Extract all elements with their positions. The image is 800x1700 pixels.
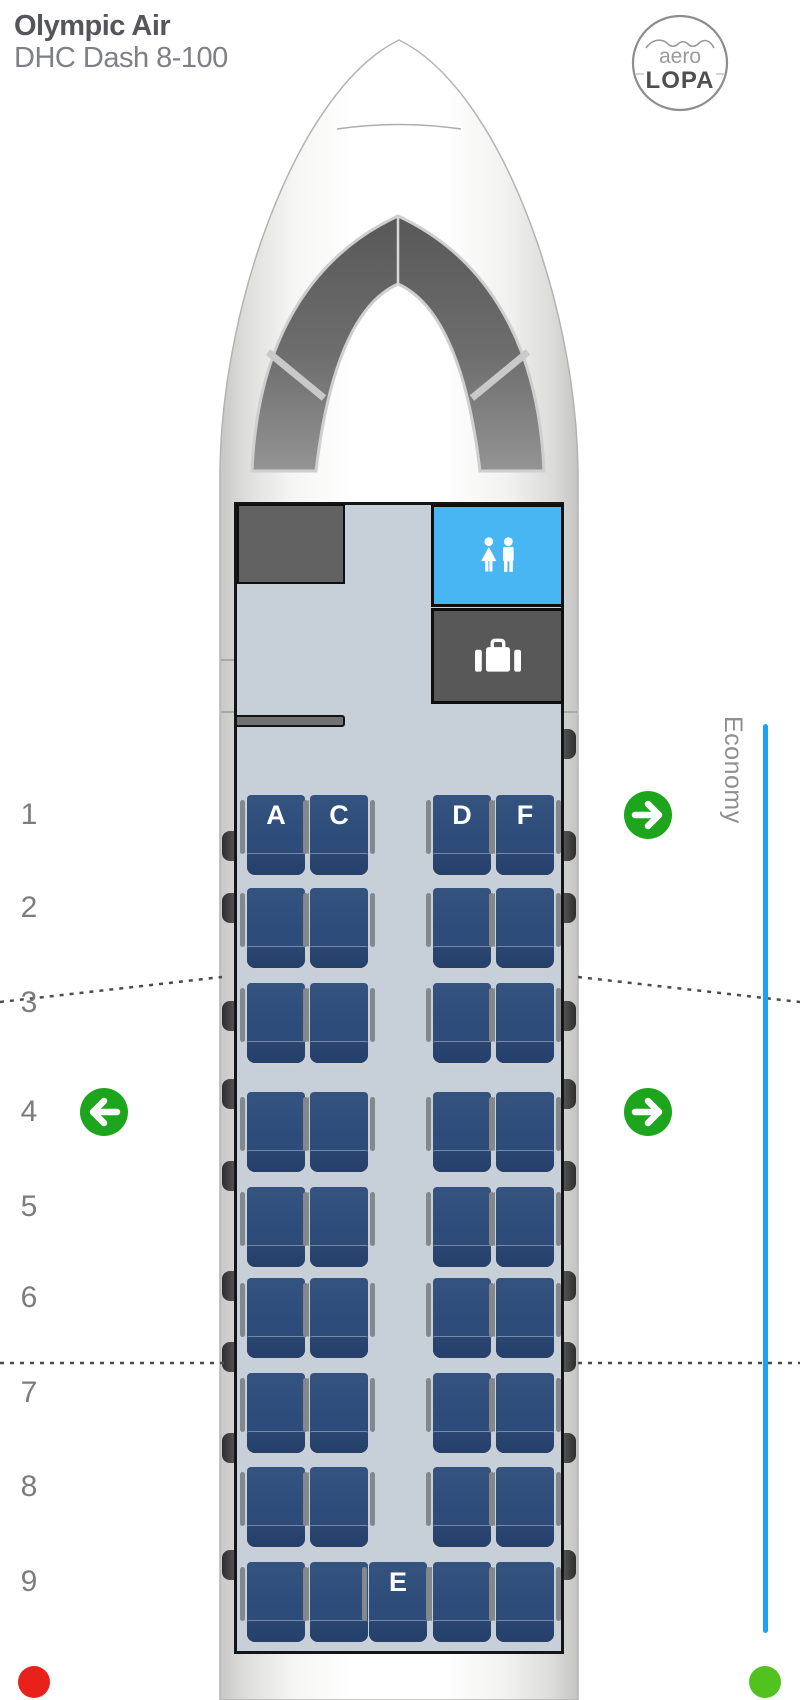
row-number-4: 4 (9, 1095, 49, 1129)
emergency-exit-row4-right (624, 1088, 672, 1136)
seat-cushion (496, 1041, 554, 1063)
row-number-8: 8 (9, 1470, 49, 1504)
seat-cushion (433, 946, 491, 968)
seat-5F[interactable] (496, 1187, 554, 1267)
seat-8F[interactable] (496, 1467, 554, 1547)
seat-5C[interactable] (310, 1187, 368, 1267)
seat-cushion (310, 1525, 368, 1547)
seat-cushion (310, 1620, 368, 1642)
seat-5A[interactable] (247, 1187, 305, 1267)
economy-class-line (763, 724, 768, 1633)
front-partition (235, 715, 345, 727)
aircraft-model: DHC Dash 8-100 (14, 42, 228, 74)
seat-1A[interactable]: A (247, 795, 305, 875)
logo-text-lopa: LOPA (646, 67, 715, 94)
seat-cushion (247, 1431, 305, 1453)
seat-cushion (310, 1336, 368, 1358)
seat-4F[interactable] (496, 1092, 554, 1172)
seat-2C[interactable] (310, 888, 368, 968)
seat-cushion (433, 1041, 491, 1063)
seat-7C[interactable] (310, 1373, 368, 1453)
suitcase-icon (475, 637, 521, 675)
seat-5D[interactable] (433, 1187, 491, 1267)
cabin-window (563, 729, 576, 759)
seat-column-label: E (369, 1567, 427, 1598)
galley-unit (237, 504, 345, 584)
seat-4C[interactable] (310, 1092, 368, 1172)
logo-text-aero: aero (659, 45, 701, 68)
lavatory (431, 504, 564, 607)
seat-column-label: F (496, 800, 554, 831)
row-number-7: 7 (9, 1376, 49, 1410)
seat-7A[interactable] (247, 1373, 305, 1453)
exit-arrow-left-icon (80, 1088, 128, 1136)
seat-cushion (496, 1620, 554, 1642)
seat-2F[interactable] (496, 888, 554, 968)
seat-cushion (247, 1150, 305, 1172)
cabin-window (563, 893, 576, 923)
seat-3A[interactable] (247, 983, 305, 1063)
seat-1F[interactable]: F (496, 795, 554, 875)
seat-9D[interactable] (433, 1562, 491, 1642)
seat-8D[interactable] (433, 1467, 491, 1547)
seat-cushion (310, 946, 368, 968)
seat-6D[interactable] (433, 1278, 491, 1358)
seat-cushion (433, 1245, 491, 1267)
seat-3D[interactable] (433, 983, 491, 1063)
seat-cushion (433, 1525, 491, 1547)
seat-cushion (496, 1150, 554, 1172)
seat-9E[interactable]: E (369, 1562, 427, 1642)
cabin-window (563, 831, 576, 861)
emergency-exit-row1-right (624, 791, 672, 839)
seat-9C[interactable] (310, 1562, 368, 1642)
seat-cushion (496, 853, 554, 875)
seat-cushion (496, 946, 554, 968)
seat-cushion (247, 1245, 305, 1267)
cabin-window (563, 1342, 576, 1372)
seat-cushion (433, 1150, 491, 1172)
economy-label: Economy (718, 716, 747, 856)
seat-cushion (310, 853, 368, 875)
row-number-1: 1 (9, 798, 49, 832)
seat-cushion (433, 1620, 491, 1642)
seat-4D[interactable] (433, 1092, 491, 1172)
seat-cushion (433, 1431, 491, 1453)
cabin-window (563, 1433, 576, 1463)
seat-cushion (310, 1150, 368, 1172)
seat-3C[interactable] (310, 983, 368, 1063)
seat-6F[interactable] (496, 1278, 554, 1358)
page-title: Olympic Air DHC Dash 8-100 (14, 10, 228, 75)
seat-6C[interactable] (310, 1278, 368, 1358)
cabin-window (563, 1161, 576, 1191)
seat-1C[interactable]: C (310, 795, 368, 875)
seat-column-label: A (247, 800, 305, 831)
seat-7D[interactable] (433, 1373, 491, 1453)
seat-9A[interactable] (247, 1562, 305, 1642)
male-female-icon (475, 536, 521, 576)
seat-cushion (496, 1525, 554, 1547)
seat-cushion (369, 1620, 427, 1642)
seat-cushion (310, 1431, 368, 1453)
seat-cushion (247, 1041, 305, 1063)
cabin-window (563, 1271, 576, 1301)
seat-cushion (247, 1336, 305, 1358)
seat-8C[interactable] (310, 1467, 368, 1547)
row-number-5: 5 (9, 1190, 49, 1224)
brand-logo: aero LOPA (630, 13, 730, 113)
seat-3F[interactable] (496, 983, 554, 1063)
seat-cushion (433, 853, 491, 875)
port-nav-light (18, 1666, 50, 1698)
seat-cushion (496, 1431, 554, 1453)
seat-7F[interactable] (496, 1373, 554, 1453)
seat-column-label: D (433, 800, 491, 831)
cabin-window (563, 1079, 576, 1109)
cabin-window (563, 1001, 576, 1031)
seat-cushion (247, 1525, 305, 1547)
seat-2D[interactable] (433, 888, 491, 968)
row-number-3: 3 (9, 986, 49, 1020)
storage-closet (431, 608, 564, 704)
seat-cushion (247, 946, 305, 968)
exit-arrow-right-icon (624, 1088, 672, 1136)
seat-6A[interactable] (247, 1278, 305, 1358)
emergency-exit-row4-left (80, 1088, 128, 1136)
seat-cushion (247, 1620, 305, 1642)
seat-1D[interactable]: D (433, 795, 491, 875)
airline-name: Olympic Air (14, 10, 228, 42)
seat-cushion (310, 1041, 368, 1063)
row-number-6: 6 (9, 1281, 49, 1315)
seat-4A[interactable] (247, 1092, 305, 1172)
seat-column-label: C (310, 800, 368, 831)
exit-arrow-right-icon (624, 791, 672, 839)
seat-cushion (433, 1336, 491, 1358)
row-number-9: 9 (9, 1565, 49, 1599)
cabin-window (563, 1550, 576, 1580)
seat-cushion (310, 1245, 368, 1267)
seat-2A[interactable] (247, 888, 305, 968)
seat-cushion (496, 1336, 554, 1358)
row-number-2: 2 (9, 891, 49, 925)
seat-8A[interactable] (247, 1467, 305, 1547)
seat-cushion (247, 853, 305, 875)
seat-cushion (496, 1245, 554, 1267)
starboard-nav-light (749, 1666, 781, 1698)
seat-9F[interactable] (496, 1562, 554, 1642)
